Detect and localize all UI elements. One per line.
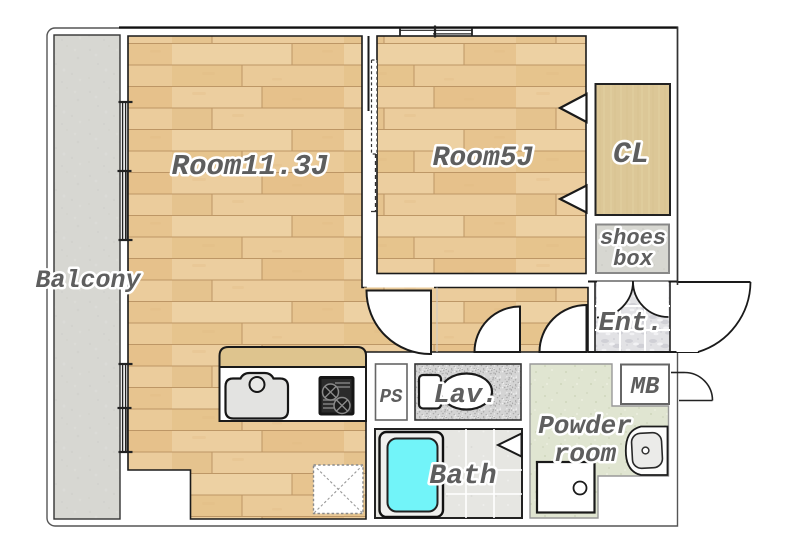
svg-text:Room5J: Room5J xyxy=(433,143,534,174)
svg-text:Powder: Powder xyxy=(538,411,632,441)
svg-text:CL: CL xyxy=(613,138,649,172)
svg-text:room: room xyxy=(554,439,617,469)
svg-text:MB: MB xyxy=(630,374,660,401)
svg-text:Room11.3J: Room11.3J xyxy=(172,150,329,183)
svg-text:Lav.: Lav. xyxy=(434,381,499,411)
svg-text:Ent.: Ent. xyxy=(599,309,664,339)
svg-text:PS: PS xyxy=(380,386,403,408)
svg-text:Balcony: Balcony xyxy=(35,266,141,295)
svg-text:box: box xyxy=(613,247,653,272)
svg-text:Bath: Bath xyxy=(429,461,496,492)
